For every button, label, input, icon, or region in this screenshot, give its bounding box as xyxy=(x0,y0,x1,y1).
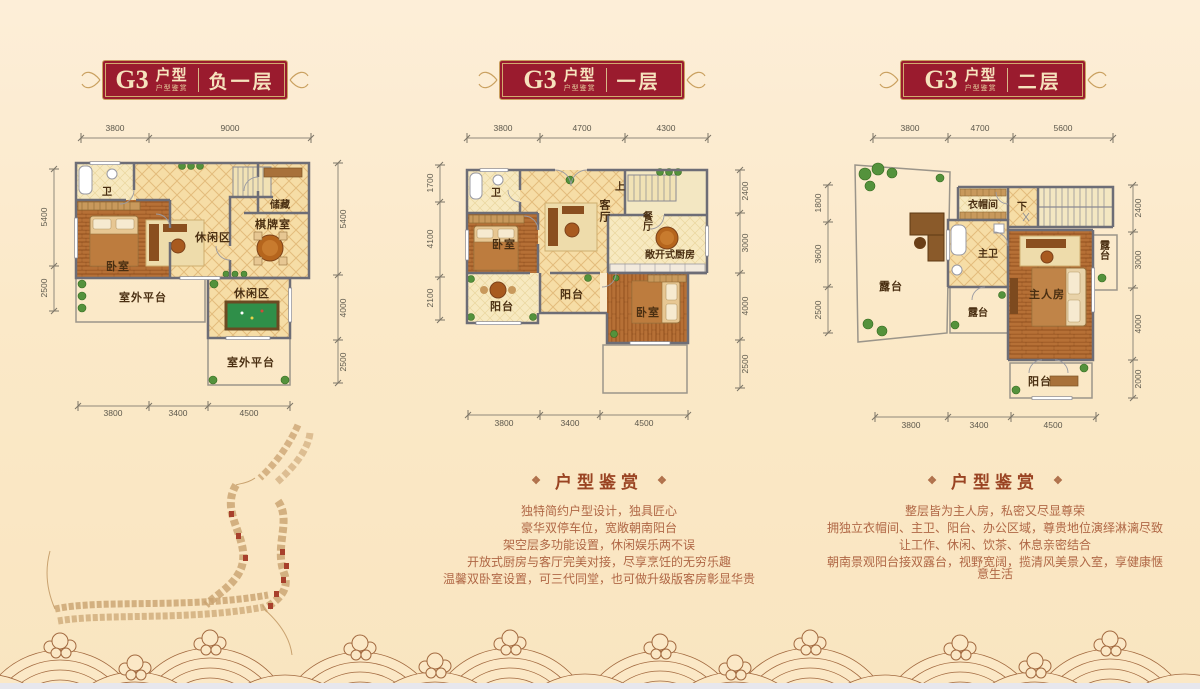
dim-label: 3400 xyxy=(169,408,188,418)
dim-label: 3400 xyxy=(561,418,580,428)
plan-type-label: 户型 xyxy=(156,68,188,83)
room-label: 主卫 xyxy=(978,247,998,260)
banner-flourish-right-icon xyxy=(288,65,310,95)
review-line: 独特简约户型设计，独具匠心 xyxy=(427,505,771,517)
review-lines: 整层皆为主人房，私密又尽显尊荣 拥独立衣帽间、主卫、阳台、办公区域，尊贵地位演绎… xyxy=(823,505,1167,580)
room-label: 敞开式厨房 xyxy=(645,248,695,261)
banner-flourish-left-icon xyxy=(477,65,499,95)
plan-subtitle: 户型鉴赏 xyxy=(965,85,997,92)
dim-label: 4500 xyxy=(240,408,259,418)
floor-name: 二层 xyxy=(1018,67,1062,94)
diamond-ornament-icon: ❖ xyxy=(927,474,937,487)
dim-right: 5400 4000 2500 xyxy=(333,160,348,386)
banner-flourish-left-icon xyxy=(878,65,900,95)
coffee-table-icon xyxy=(1041,251,1053,263)
room-label: 露台 xyxy=(1098,239,1110,261)
plan-subtitle: 户型鉴赏 xyxy=(564,85,596,92)
floor-plan-basement: 3800 9000 5400 2500 5400 4000 2500 3800 … xyxy=(30,118,460,418)
room-label: 露台 xyxy=(968,306,988,319)
dim-label: 9000 xyxy=(221,123,240,133)
floor-name: 负一层 xyxy=(209,67,275,94)
dim-left: 1700 4100 2100 xyxy=(425,162,445,323)
room-label: 棋牌室 xyxy=(254,217,291,231)
dim-label: 3800 xyxy=(902,420,921,430)
plan-type-label: 户型 xyxy=(965,68,997,83)
review-line: 整层皆为主人房，私密又尽显尊荣 xyxy=(823,505,1167,517)
dim-label: 4300 xyxy=(657,123,676,133)
desk-icon xyxy=(910,213,944,235)
toilet-icon xyxy=(107,169,117,179)
dim-label: 3800 xyxy=(901,123,920,133)
dim-top: 3800 4700 4300 xyxy=(464,123,711,143)
dim-label: 4500 xyxy=(635,418,654,428)
stair-direction-label: 下 xyxy=(1017,201,1027,213)
coffee-table-icon xyxy=(565,223,579,237)
review-heading: 户型鉴赏 xyxy=(951,468,1039,493)
dim-bottom: 3800 3400 4500 xyxy=(465,410,691,428)
room-label: 卧室 xyxy=(492,237,516,251)
wave-border-ornament xyxy=(0,595,1200,689)
review-heading: 户型鉴赏 xyxy=(555,468,643,493)
banner-flourish-right-icon xyxy=(1086,65,1108,95)
banner-flourish-right-icon xyxy=(685,65,707,95)
banner-floor2: G3 户型 户型鉴赏 二层 xyxy=(878,60,1108,100)
dim-right: 2400 3000 4000 2500 xyxy=(735,167,750,391)
review-section-level1: ❖ 户型鉴赏 ❖ 独特简约户型设计，独具匠心 豪华双停车位，宽敞朝南阳台 架空层… xyxy=(427,468,771,590)
dim-label: 4700 xyxy=(971,123,990,133)
banner-box: G3 户型 户型鉴赏 一层 xyxy=(499,60,685,100)
floor-plan-level1: 3800 4700 4300 1700 4100 2100 2400 3000 … xyxy=(420,118,800,448)
room-label: 阳台 xyxy=(560,287,584,301)
storage-shelf-icon xyxy=(264,168,302,177)
banner-divider xyxy=(606,68,607,92)
kitchen-counter-icon xyxy=(610,264,705,272)
dim-label: 2000 xyxy=(1133,369,1143,388)
review-line: 架空层多功能设置，休闲娱乐两不误 xyxy=(427,539,771,551)
room-label: 衣帽间 xyxy=(968,198,998,211)
room-label: 卫 xyxy=(102,186,112,198)
plan-type-label: 户型 xyxy=(564,68,596,83)
review-heading-row: ❖ 户型鉴赏 ❖ xyxy=(823,468,1167,493)
dim-label: 3000 xyxy=(1133,250,1143,269)
room-label: 休闲区 xyxy=(194,230,231,244)
review-line: 温馨双卧室设置，可三代同堂，也可做升级版客房彰显华贵 xyxy=(427,573,771,585)
dim-label: 2100 xyxy=(425,288,435,307)
dim-label: 4000 xyxy=(338,298,348,317)
room-label: 阳台 xyxy=(490,299,514,313)
floor-name: 一层 xyxy=(617,67,661,94)
room-label: 阳台 xyxy=(1028,374,1052,388)
review-line: 豪华双停车位，宽敞朝南阳台 xyxy=(427,522,771,534)
plan-type-wrap: 户型 户型鉴赏 xyxy=(564,68,596,92)
poster-canvas: G3 户型 户型鉴赏 负一层 G3 户型 户型鉴赏 一层 xyxy=(0,0,1200,689)
room-label: 卧室 xyxy=(106,259,130,273)
room-label: 室外平台 xyxy=(119,290,167,304)
dim-label: 5600 xyxy=(1054,123,1073,133)
dim-bottom: 3800 3400 4500 xyxy=(872,412,1099,430)
diamond-ornament-icon: ❖ xyxy=(531,474,541,487)
dim-label: 4000 xyxy=(1133,314,1143,333)
dim-label: 2500 xyxy=(39,278,49,297)
dim-label: 1700 xyxy=(425,173,435,192)
wardrobe-icon xyxy=(648,275,686,282)
diamond-ornament-icon: ❖ xyxy=(657,474,667,487)
dim-bottom: 3800 3400 4500 xyxy=(75,401,293,418)
dim-label: 3000 xyxy=(740,233,750,252)
billiard-table-icon xyxy=(226,302,278,329)
banner-box: G3 户型 户型鉴赏 二层 xyxy=(900,60,1086,100)
bottom-strip xyxy=(0,683,1200,689)
dim-label: 3800 xyxy=(104,408,123,418)
sofa-icon xyxy=(548,208,558,246)
review-line: 开放式厨房与客厅完美对接，尽享烹饪的无穷乐趣 xyxy=(427,556,771,568)
room-label: 休闲区 xyxy=(233,286,270,300)
plan-code: G3 xyxy=(115,67,148,93)
room-label: 露台 xyxy=(879,279,903,293)
desk-icon xyxy=(928,235,944,261)
review-lines: 独特简约户型设计，独具匠心 豪华双停车位，宽敞朝南阳台 架空层多功能设置，休闲娱… xyxy=(427,505,771,585)
sofa-icon xyxy=(149,224,159,261)
banner-floor1: G3 户型 户型鉴赏 一层 xyxy=(477,60,707,100)
sofa-icon xyxy=(1026,239,1066,248)
dim-label: 4700 xyxy=(573,123,592,133)
wardrobe-icon xyxy=(78,202,140,210)
review-line: 朝南景观阳台接双露台，视野宽阔，揽清风美景入室，享健康惬意生活 xyxy=(823,556,1167,580)
dim-label: 2400 xyxy=(740,181,750,200)
diamond-ornament-icon: ❖ xyxy=(1053,474,1063,487)
dim-label: 1800 xyxy=(813,193,823,212)
dim-top: 3800 4700 5600 xyxy=(870,123,1116,143)
plan-type-wrap: 户型 户型鉴赏 xyxy=(965,68,997,92)
dim-right: 2400 3000 4000 2000 xyxy=(1128,182,1143,401)
dim-label: 4000 xyxy=(740,296,750,315)
dim-top: 3800 9000 xyxy=(78,123,314,143)
dim-label: 3800 xyxy=(106,123,125,133)
dim-label: 2500 xyxy=(338,352,348,371)
bench-icon xyxy=(1050,376,1078,386)
chair-icon xyxy=(914,237,926,249)
review-heading-row: ❖ 户型鉴赏 ❖ xyxy=(427,468,771,493)
dim-label: 3600 xyxy=(813,244,823,263)
plan-subtitle: 户型鉴赏 xyxy=(156,85,188,92)
review-section-level2: ❖ 户型鉴赏 ❖ 整层皆为主人房，私密又尽显尊荣 拥独立衣帽间、主卫、阳台、办公… xyxy=(823,468,1167,585)
plan-code: G3 xyxy=(523,67,556,93)
dim-label: 2400 xyxy=(1133,198,1143,217)
room-label: 储藏 xyxy=(269,198,290,211)
dim-label: 4500 xyxy=(1044,420,1063,430)
tv-cabinet-icon xyxy=(1010,278,1018,314)
dim-label: 5400 xyxy=(338,209,348,228)
patio-table-icon xyxy=(490,282,506,298)
toilet-icon xyxy=(952,265,962,275)
dim-label: 5400 xyxy=(39,207,49,226)
dim-label: 3400 xyxy=(970,420,989,430)
wardrobe-icon xyxy=(469,215,524,223)
bathtub-icon xyxy=(951,225,966,255)
banner-divider xyxy=(1007,68,1008,92)
bathtub-icon xyxy=(470,173,482,199)
bathtub-icon xyxy=(79,166,92,194)
banner-flourish-left-icon xyxy=(80,65,102,95)
banner-box: G3 户型 户型鉴赏 负一层 xyxy=(102,60,288,100)
dim-label: 4100 xyxy=(425,229,435,248)
stair-direction-label: 上 xyxy=(615,180,625,193)
floor-plan-level2: 3800 4700 5600 1800 3600 2500 2400 3000 … xyxy=(810,118,1190,448)
plan-code: G3 xyxy=(924,67,957,93)
toilet-icon xyxy=(493,175,503,185)
dim-label: 2500 xyxy=(740,354,750,373)
room-label: 卧室 xyxy=(636,305,660,319)
dim-left: 5400 2500 xyxy=(39,166,59,314)
review-line: 让工作、休闲、饮茶、休息亲密结合 xyxy=(823,539,1167,551)
plan-type-wrap: 户型 户型鉴赏 xyxy=(156,68,188,92)
room-label: 卫 xyxy=(491,187,501,199)
coffee-table-icon xyxy=(171,239,185,253)
dim-label: 3800 xyxy=(495,418,514,428)
room-label: 客厅 xyxy=(598,198,612,223)
dim-label: 2500 xyxy=(813,300,823,319)
dim-left: 1800 3600 2500 xyxy=(813,182,833,336)
dim-label: 3800 xyxy=(494,123,513,133)
room-label: 主人房 xyxy=(1029,287,1065,301)
banner-basement: G3 户型 户型鉴赏 负一层 xyxy=(80,60,310,100)
banner-divider xyxy=(198,68,199,92)
review-line: 拥独立衣帽间、主卫、阳台、办公区域，尊贵地位演绎淋漓尽致 xyxy=(823,522,1167,534)
room-label: 室外平台 xyxy=(227,355,275,369)
